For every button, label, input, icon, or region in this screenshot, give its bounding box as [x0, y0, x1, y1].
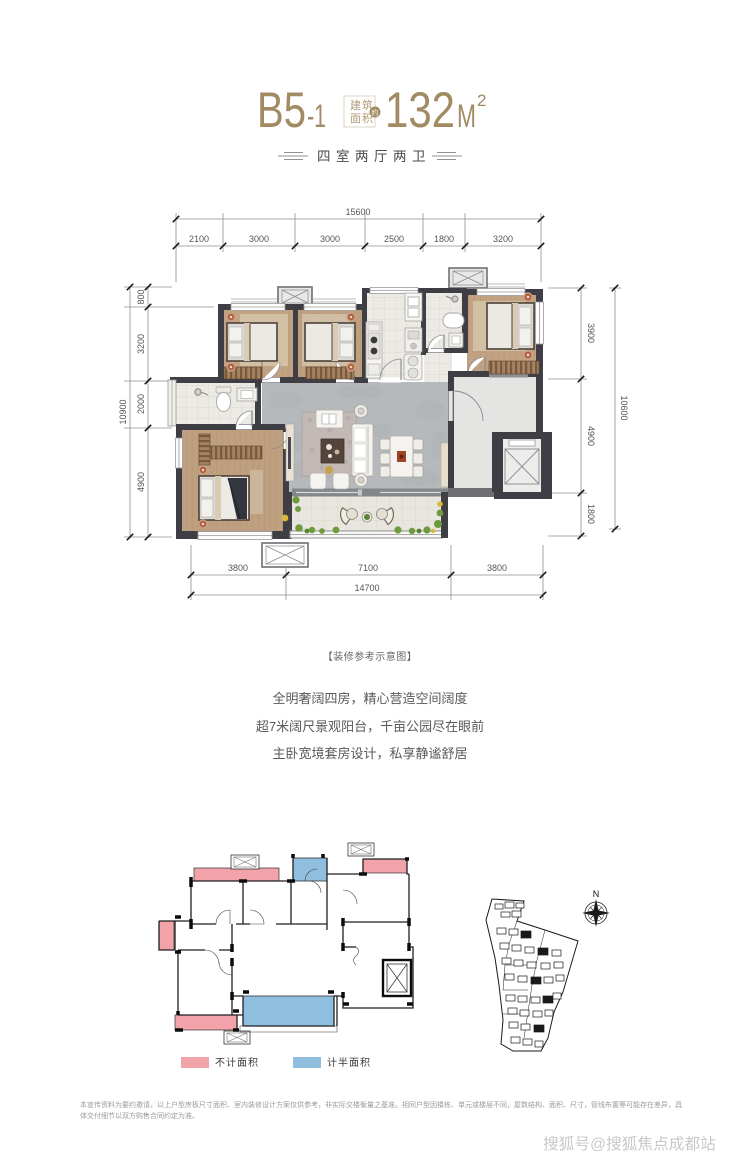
svg-text:132: 132 — [385, 82, 455, 138]
svg-text:全明奢阔四房，精心营造空间阔度: 全明奢阔四房，精心营造空间阔度 — [272, 691, 467, 706]
svg-text:不计面积: 不计面积 — [215, 1056, 259, 1069]
svg-text:3200: 3200 — [493, 234, 513, 244]
svg-text:M: M — [457, 98, 476, 134]
svg-text:B5: B5 — [257, 82, 306, 138]
svg-text:体交付细节以双方购售合同约定为准。: 体交付细节以双方购售合同约定为准。 — [80, 1111, 199, 1120]
svg-text:4900: 4900 — [586, 426, 596, 446]
svg-text:计半面积: 计半面积 — [327, 1056, 371, 1069]
svg-text:10900: 10900 — [118, 399, 128, 424]
svg-text:搜狐号@搜狐焦点成都站: 搜狐号@搜狐焦点成都站 — [543, 1135, 716, 1153]
svg-text:约: 约 — [372, 108, 379, 117]
svg-text:14700: 14700 — [354, 583, 379, 593]
svg-text:2500: 2500 — [384, 234, 404, 244]
svg-text:主卧宽境套房设计，私享静谧舒居: 主卧宽境套房设计，私享静谧舒居 — [272, 746, 467, 761]
svg-text:3000: 3000 — [249, 234, 269, 244]
svg-text:10600: 10600 — [619, 395, 629, 420]
svg-text:-1: -1 — [307, 98, 326, 134]
svg-text:2000: 2000 — [136, 394, 146, 414]
svg-text:800: 800 — [136, 289, 146, 304]
svg-text:2100: 2100 — [189, 234, 209, 244]
svg-text:1800: 1800 — [586, 504, 596, 524]
svg-text:本宣传资料为要约邀请，以上户型房板尺寸面积、室内装修设计方案: 本宣传资料为要约邀请，以上户型房板尺寸面积、室内装修设计方案仅供参考，非实际交楼… — [80, 1100, 682, 1109]
svg-text:四室两厅两卫: 四室两厅两卫 — [317, 148, 431, 164]
svg-text:3800: 3800 — [228, 563, 248, 573]
svg-text:【装修参考示意图】: 【装修参考示意图】 — [323, 650, 418, 663]
svg-text:N: N — [593, 889, 600, 899]
svg-text:3200: 3200 — [136, 334, 146, 354]
svg-text:超7米阔尺景观阳台，千亩公园尽在眼前: 超7米阔尺景观阳台，千亩公园尽在眼前 — [256, 719, 484, 734]
svg-text:3900: 3900 — [586, 323, 596, 343]
svg-text:4900: 4900 — [136, 472, 146, 492]
svg-text:15600: 15600 — [345, 207, 370, 217]
svg-text:2: 2 — [477, 91, 486, 110]
svg-text:7100: 7100 — [358, 563, 378, 573]
svg-text:1800: 1800 — [434, 234, 454, 244]
svg-text:3000: 3000 — [320, 234, 340, 244]
svg-text:3800: 3800 — [487, 563, 507, 573]
